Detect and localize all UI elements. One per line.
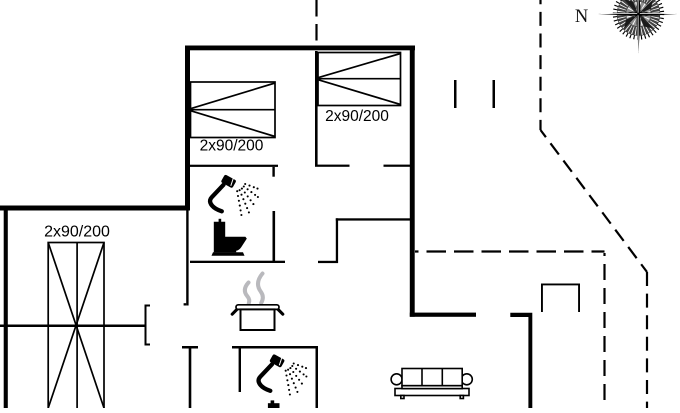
svg-text:2x90/200: 2x90/200 — [200, 138, 264, 155]
svg-text:2x90/200: 2x90/200 — [44, 224, 110, 241]
svg-text:2x90/200: 2x90/200 — [325, 108, 389, 125]
svg-text:N: N — [575, 7, 588, 27]
